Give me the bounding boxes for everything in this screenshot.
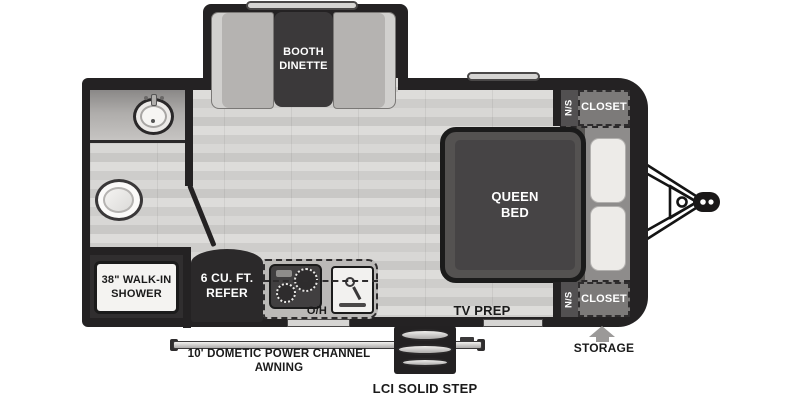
awning-label: 10' DOMETIC POWER CHANNEL AWNING	[167, 354, 391, 368]
dinette-bench-right	[333, 12, 396, 109]
slideout-window	[246, 1, 358, 10]
toilet-bowl	[103, 187, 134, 213]
tv-prep-window	[483, 319, 543, 327]
tv-prep-label: TV PREP	[427, 304, 537, 319]
pillow	[590, 138, 626, 203]
walk-in-shower: 38" WALK-IN SHOWER	[94, 261, 179, 314]
burner-small	[276, 283, 296, 303]
bathroom-wall	[185, 78, 193, 186]
overhead-label: O/H	[303, 305, 331, 319]
bedroom-window	[467, 72, 540, 81]
bathroom-sink-bowl	[140, 105, 167, 128]
overhead-cabinet-line	[263, 280, 378, 282]
closet-bottom: CLOSET	[578, 282, 630, 317]
sink-drain	[151, 119, 155, 123]
refrigerator: 6 CU. FT. REFER	[191, 249, 263, 322]
cooktop-control	[276, 270, 292, 277]
closet-bottom-ns: N/S	[561, 282, 578, 317]
closet-top: CLOSET	[578, 90, 630, 126]
mattress: QUEEN BED	[455, 140, 575, 270]
step-tread	[397, 344, 453, 355]
storage-arrow-icon	[589, 326, 615, 337]
kitchen-sink-edge	[339, 303, 366, 307]
bathroom-faucet-icon	[151, 94, 157, 106]
kitchen-window	[287, 319, 350, 327]
dinette-table: BOOTH DINETTE	[274, 12, 333, 107]
shower-wall-right	[183, 247, 191, 328]
dinette-label: BOOTH DINETTE	[274, 46, 333, 74]
step-tread	[401, 358, 449, 367]
queen-bed-label: QUEEN BED	[484, 189, 546, 222]
closet-wall-bottom	[553, 282, 561, 317]
shower-label: 38" WALK-IN SHOWER	[97, 274, 176, 302]
closet-wall-top	[553, 90, 561, 126]
faucet-handle-left	[144, 96, 148, 100]
step-label: LCI SOLID STEP	[364, 382, 486, 397]
dinette-bench-left	[211, 12, 274, 109]
faucet-handle-right	[160, 96, 164, 100]
storage-label: STORAGE	[568, 341, 640, 355]
refrigerator-label: 6 CU. FT. REFER	[195, 271, 259, 301]
pillow	[590, 206, 626, 271]
closet-bottom-label: CLOSET	[581, 293, 627, 307]
closet-top-label: CLOSET	[581, 101, 627, 115]
rv-floorplan: BOOTH DINETTE 38" WALK-IN SHOWER 6 CU. F…	[0, 0, 800, 400]
closet-top-ns: N/S	[561, 90, 578, 126]
shower-wall-top	[82, 247, 191, 255]
step-tread	[400, 329, 450, 341]
